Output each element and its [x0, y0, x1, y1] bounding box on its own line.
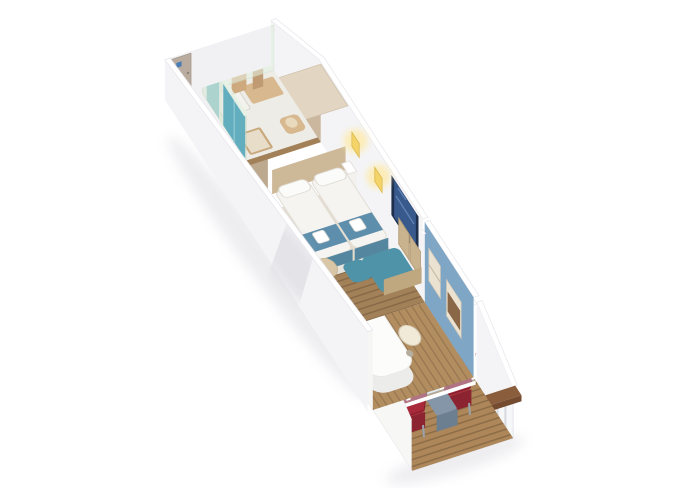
floor-plan-render — [0, 0, 680, 488]
stateroom-floorplan-image — [0, 0, 680, 488]
door-handle — [187, 72, 189, 74]
